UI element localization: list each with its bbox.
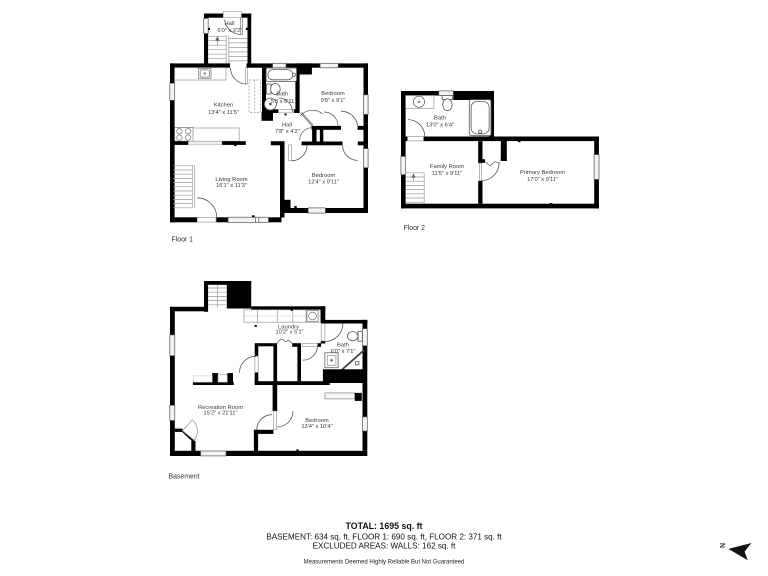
svg-text:EXCLUDED AREAS: WALLS: 162 sq.: EXCLUDED AREAS: WALLS: 162 sq. ft bbox=[313, 542, 456, 551]
svg-text:12'4" x 9'11": 12'4" x 9'11" bbox=[308, 179, 339, 185]
svg-text:Hall: Hall bbox=[225, 21, 235, 27]
svg-text:Family Room: Family Room bbox=[430, 164, 464, 170]
svg-text:TOTAL: 1695 sq. ft: TOTAL: 1695 sq. ft bbox=[346, 521, 423, 531]
svg-text:10'2" x 5'1": 10'2" x 5'1" bbox=[275, 329, 303, 335]
svg-text:13'4" x 11'5": 13'4" x 11'5" bbox=[208, 110, 239, 116]
svg-text:Bedroom: Bedroom bbox=[312, 173, 336, 179]
svg-text:7'8" x 4'2": 7'8" x 4'2" bbox=[275, 129, 300, 135]
svg-text:Kitchen: Kitchen bbox=[214, 103, 233, 109]
svg-text:6'0" x 7'1": 6'0" x 7'1" bbox=[331, 349, 356, 355]
svg-text:Bath: Bath bbox=[276, 92, 288, 98]
svg-text:6'0" x 3'2": 6'0" x 3'2" bbox=[217, 28, 242, 34]
svg-text:Floor 1: Floor 1 bbox=[172, 237, 194, 244]
svg-text:9'8" x 9'1": 9'8" x 9'1" bbox=[321, 98, 346, 104]
svg-text:Bath: Bath bbox=[337, 343, 349, 349]
svg-text:Floor 2: Floor 2 bbox=[404, 225, 426, 232]
svg-text:Basement: Basement bbox=[169, 474, 200, 481]
svg-text:13'4" x 10'4": 13'4" x 10'4" bbox=[301, 424, 332, 430]
svg-text:5'8 x 6'11: 5'8 x 6'11 bbox=[271, 99, 295, 105]
svg-text:15'2" x 21'11": 15'2" x 21'11" bbox=[204, 411, 238, 417]
svg-text:Hall: Hall bbox=[282, 123, 292, 129]
svg-text:N: N bbox=[720, 543, 727, 548]
svg-text:Measurements Deemed Highly Rel: Measurements Deemed Highly Reliable But … bbox=[304, 560, 465, 566]
svg-text:11'5" x 9'11": 11'5" x 9'11" bbox=[432, 171, 462, 177]
svg-text:13'0" x 6'4": 13'0" x 6'4" bbox=[426, 122, 454, 128]
svg-text:17'0" x 9'11": 17'0" x 9'11" bbox=[527, 177, 558, 183]
svg-text:Primary Bedroom: Primary Bedroom bbox=[520, 170, 565, 176]
svg-text:Bedroom: Bedroom bbox=[321, 91, 345, 97]
svg-text:BASEMENT: 634 sq. ft, FLOOR 1:: BASEMENT: 634 sq. ft, FLOOR 1: 690 sq. f… bbox=[266, 533, 502, 542]
svg-text:Bath: Bath bbox=[434, 116, 446, 122]
svg-text:16'1" x 11'3": 16'1" x 11'3" bbox=[216, 183, 247, 189]
